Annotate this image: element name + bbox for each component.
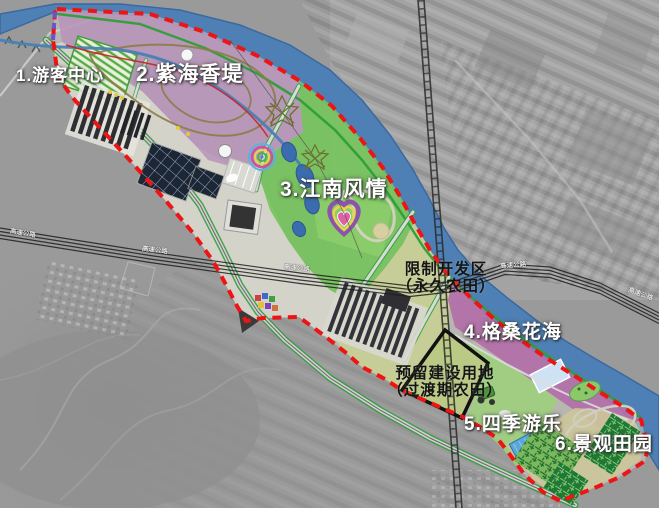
boundary-blue-segment <box>53 12 55 40</box>
main-building <box>224 200 262 234</box>
white-pavilion <box>181 49 193 61</box>
small-white-feature <box>499 410 511 418</box>
dome-building <box>219 145 232 158</box>
master-plan-map: 1.游客中心 2.紫海香堤 3.江南风情 4.格桑花海 5.四季游乐 6.景观田… <box>0 0 659 508</box>
round-plaza <box>373 223 389 239</box>
rainbow-spiral-feature <box>249 144 275 170</box>
plan-svg <box>0 0 659 508</box>
